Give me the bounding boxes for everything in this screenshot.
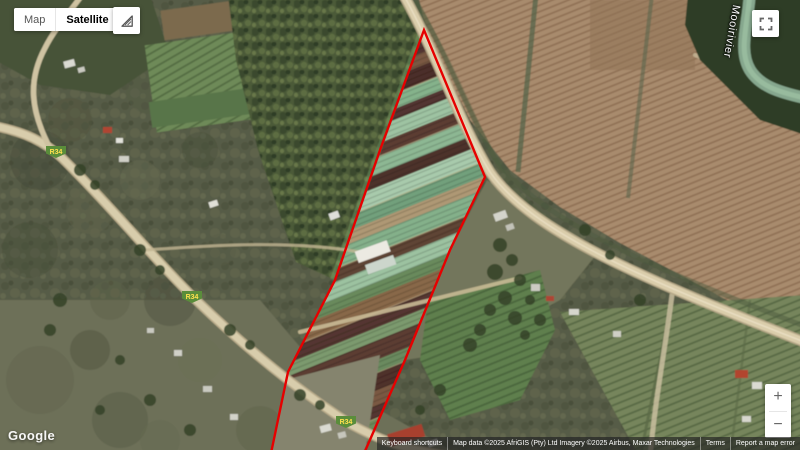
satellite-imagery: [0, 0, 800, 450]
attribution-bar: Keyboard shortcuts Map data ©2025 AfriGI…: [377, 437, 800, 450]
triangle-ruler-icon: [119, 13, 135, 29]
map-type-satellite-button[interactable]: Satellite: [55, 8, 118, 31]
draw-tool-button[interactable]: [113, 7, 140, 34]
route-badge-label: R34: [50, 149, 63, 156]
keyboard-shortcuts-button[interactable]: Keyboard shortcuts: [377, 437, 447, 450]
fullscreen-icon: [759, 17, 773, 31]
map-data-credit: Map data ©2025 AfriGIS (Pty) Ltd Imagery…: [447, 437, 700, 450]
map-type-control: Map Satellite: [14, 8, 119, 31]
map-canvas[interactable]: Mooirivier R34 R34 R34 Map Satellite + −…: [0, 0, 800, 450]
zoom-out-button[interactable]: −: [765, 412, 791, 439]
fullscreen-button[interactable]: [752, 10, 779, 37]
route-badge-label: R34: [186, 294, 199, 301]
google-logo: Google: [8, 428, 55, 443]
report-error-link[interactable]: Report a map error: [730, 437, 800, 450]
terms-link[interactable]: Terms: [700, 437, 730, 450]
route-badge-label: R34: [340, 419, 353, 426]
zoom-in-button[interactable]: +: [765, 384, 791, 411]
map-type-map-button[interactable]: Map: [14, 8, 55, 31]
zoom-control: + −: [765, 384, 791, 438]
